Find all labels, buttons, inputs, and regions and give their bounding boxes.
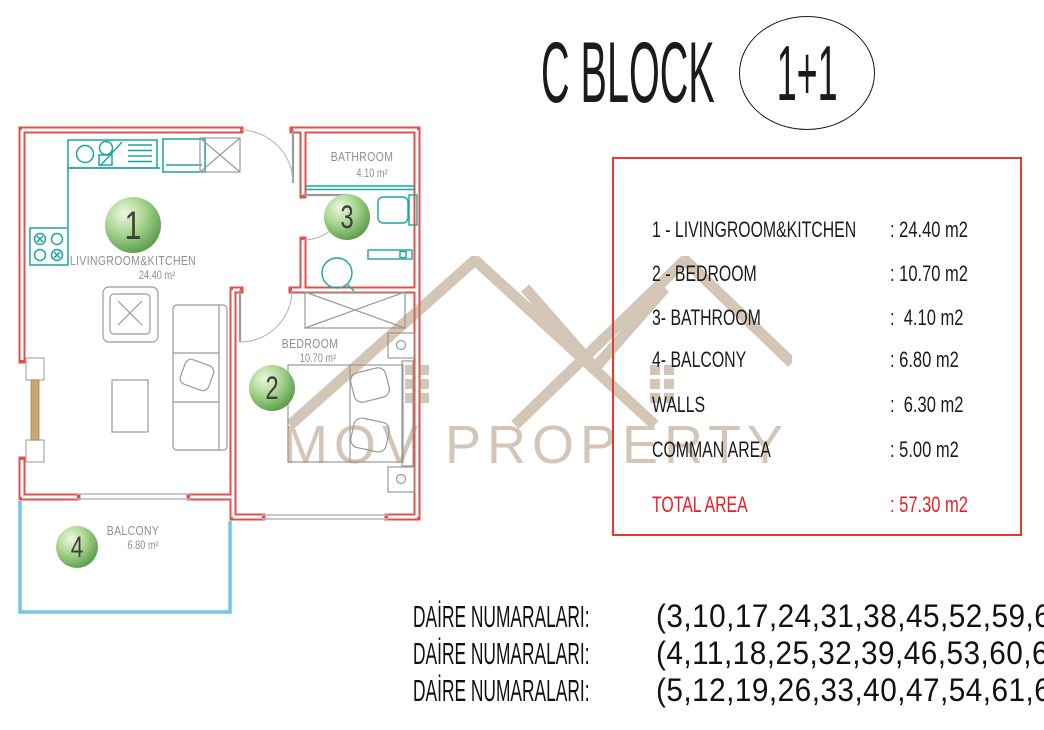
row-label: WALLS [652, 390, 705, 420]
table-row: 3- BATHROOM : 4.10 m2 [614, 303, 1020, 333]
left-window [26, 358, 44, 462]
row-value: : 10.70 m2 [890, 259, 968, 289]
bathroom-area: 4.10 m² [356, 168, 388, 180]
daire-numbers: (5,12,19,26,33,40,47,54,61,68) [656, 672, 1044, 709]
daire-label: DAİRE NUMARALARI: [413, 599, 590, 635]
unit-type-badge: 1+1 [739, 16, 875, 130]
area-table: 1 - LIVINGROOM&KITCHEN : 24.40 m2 2 - BE… [612, 157, 1022, 536]
row-value: : 4.10 m2 [890, 303, 963, 333]
bedroom-area: 10.70 m² [300, 353, 337, 365]
row-label: 4- BALCONY [652, 345, 746, 375]
bathroom-label: BATHROOM [331, 150, 393, 164]
balcony-label: BALCONY [107, 524, 159, 538]
apartment-numbers-line: DAİRE NUMARALARI: (4,11,18,25,32,39,46,5… [413, 635, 1044, 672]
table-row: 2 - BEDROOM : 10.70 m2 [614, 259, 1020, 289]
floor-plan: 1 2 3 4 LIVINGROOM&KITCHEN 24.40 m² BEDR… [0, 115, 440, 615]
bedroom-label: BEDROOM [282, 337, 339, 351]
row-value: : 6.80 m2 [890, 345, 959, 375]
table-row: 1 - LIVINGROOM&KITCHEN : 24.40 m2 [614, 215, 1020, 245]
row-value: : 24.40 m2 [890, 215, 968, 245]
room-number-1: 1 [125, 204, 142, 248]
row-value: : 6.30 m2 [890, 390, 963, 420]
livingroom-furniture [103, 287, 227, 450]
unit-type-label: 1+1 [777, 28, 838, 119]
balcony-railing [20, 501, 230, 612]
daire-numbers: (3,10,17,24,31,38,45,52,59,66) [656, 598, 1044, 635]
livingroom-label: LIVINGROOM&KITCHEN [70, 254, 196, 268]
apartment-numbers-line: DAİRE NUMARALARI: (5,12,19,26,33,40,47,5… [413, 672, 1044, 709]
table-row: 4- BALCONY : 6.80 m2 [614, 345, 1020, 375]
row-label: 2 - BEDROOM [652, 259, 757, 289]
table-total-row: TOTAL AREA : 57.30 m2 [614, 490, 1020, 520]
livingroom-area: 24.40 m² [139, 270, 176, 282]
table-row: COMMAN AREA : 5.00 m2 [614, 435, 1020, 465]
daire-label: DAİRE NUMARALARI: [413, 673, 590, 709]
room-number-4: 4 [71, 530, 84, 564]
coffee-table [112, 380, 148, 432]
room-number-2: 2 [265, 370, 278, 406]
room-circles: 1 2 3 4 [56, 194, 370, 568]
row-label: 3- BATHROOM [652, 303, 761, 333]
row-label: 1 - LIVINGROOM&KITCHEN [652, 215, 856, 245]
page-title: C BLOCK [541, 28, 715, 118]
bedroom-furniture [288, 292, 414, 492]
balcony-area: 6.80 m² [127, 540, 159, 552]
row-label: COMMAN AREA [652, 435, 771, 465]
room-number-3: 3 [340, 199, 353, 235]
row-value: : 5.00 m2 [890, 435, 959, 465]
daire-numbers: (4,11,18,25,32,39,46,53,60,67) [656, 635, 1044, 672]
apartment-numbers-line: DAİRE NUMARALARI: (3,10,17,24,31,38,45,5… [413, 598, 1044, 635]
total-value: : 57.30 m2 [890, 490, 968, 520]
cabinet [200, 138, 240, 172]
total-label: TOTAL AREA [652, 490, 748, 520]
table-row: WALLS : 6.30 m2 [614, 390, 1020, 420]
daire-label: DAİRE NUMARALARI: [413, 636, 590, 672]
